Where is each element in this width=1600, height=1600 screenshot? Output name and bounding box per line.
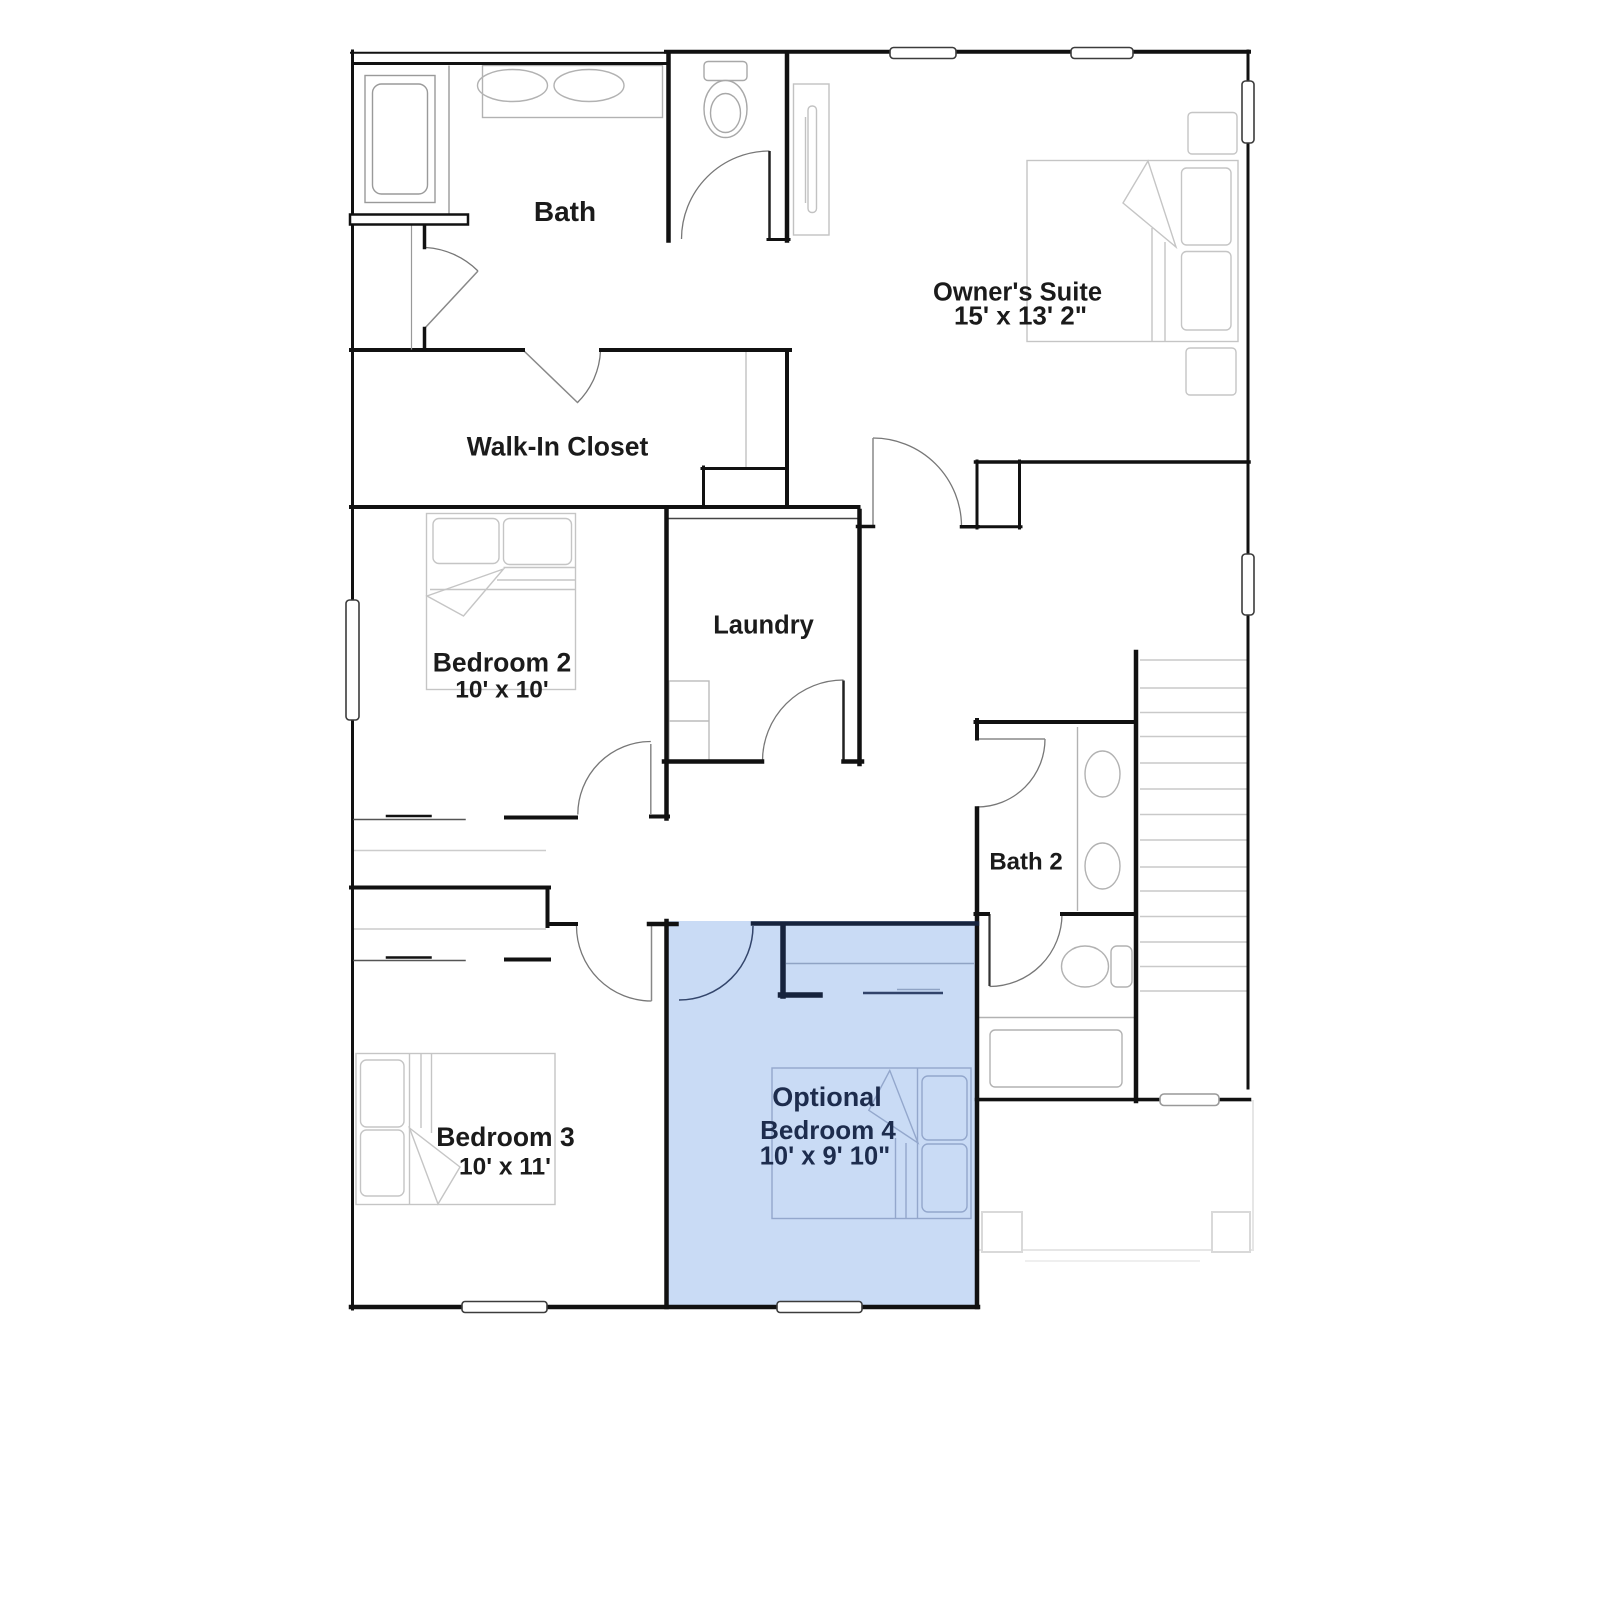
svg-text:Laundry: Laundry [713, 612, 814, 640]
svg-text:10' x 9' 10": 10' x 9' 10" [760, 1143, 891, 1171]
svg-text:10' x 10': 10' x 10' [455, 677, 548, 704]
svg-text:Walk-In Closet: Walk-In Closet [467, 432, 649, 462]
svg-text:Bath: Bath [534, 196, 596, 227]
svg-text:10' x 11': 10' x 11' [459, 1154, 551, 1181]
svg-text:15' x 13' 2": 15' x 13' 2" [954, 301, 1087, 331]
svg-text:Optional: Optional [772, 1082, 882, 1112]
svg-text:Bedroom 2: Bedroom 2 [433, 648, 571, 678]
svg-text:Bedroom 4: Bedroom 4 [760, 1115, 896, 1145]
svg-text:Bedroom 3: Bedroom 3 [436, 1122, 574, 1152]
svg-text:Bath 2: Bath 2 [989, 849, 1062, 876]
